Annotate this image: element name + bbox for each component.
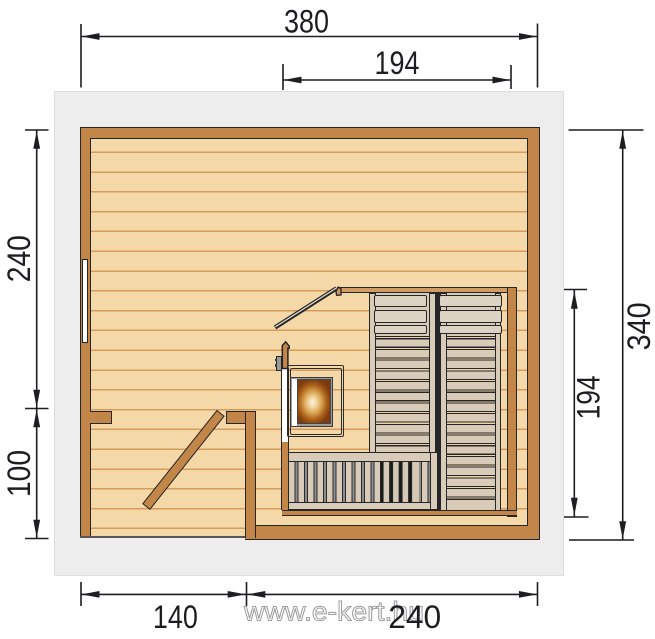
svg-text:240: 240 <box>388 599 441 635</box>
svg-text:100: 100 <box>1 450 37 497</box>
svg-text:194: 194 <box>375 45 420 81</box>
svg-text:194: 194 <box>571 375 607 419</box>
svg-text:380: 380 <box>284 4 329 40</box>
svg-text:340: 340 <box>621 302 655 350</box>
svg-text:140: 140 <box>153 599 198 635</box>
svg-text:240: 240 <box>1 235 37 282</box>
